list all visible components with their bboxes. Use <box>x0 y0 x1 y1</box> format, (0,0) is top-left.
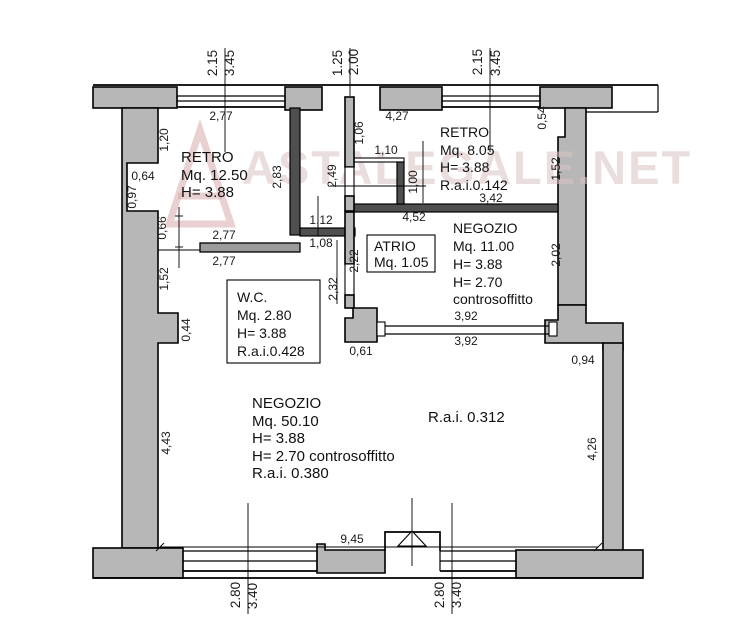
dim-label: 4,26 <box>585 437 599 461</box>
dim-label: 1,52 <box>549 157 563 181</box>
wall-retro-left-right <box>290 108 300 235</box>
dim-label: 1,06 <box>352 121 366 145</box>
room-retro-left-height: H= 3.88 <box>181 184 234 201</box>
dim-label: 3.45 <box>488 50 503 76</box>
wall-top-pillar-right <box>380 87 442 110</box>
room-atrio-name: ATRIO <box>374 238 416 254</box>
room-wc-name: W.C. <box>237 289 267 305</box>
room-negozio-small-area: Mq. 11.00 <box>453 238 514 254</box>
dim-label: 4,52 <box>402 210 426 224</box>
glass-partition-jamb <box>377 322 385 336</box>
room-wc-height: H= 3.88 <box>237 325 287 341</box>
room-retro-left-area: Mq. 12.50 <box>181 167 248 184</box>
dim-label: 4,43 <box>159 431 173 455</box>
room-negozio-small-note: controsoffitto <box>453 291 533 307</box>
wall-bottom-middle <box>317 544 385 573</box>
dim-label: 0,97 <box>125 185 139 209</box>
wall-bottom-right-corner <box>516 550 643 578</box>
dim-label: 3.40 <box>245 583 260 609</box>
dim-label: 2.15 <box>470 49 485 75</box>
dim-label: 2,32 <box>326 277 340 301</box>
room-atrio-area: Mq. 1.05 <box>374 254 429 270</box>
room-retro-left-name: RETRO <box>181 149 234 166</box>
dim-label: 2.80 <box>228 582 243 608</box>
room-retro-right-rai: R.a.i.0.142 <box>440 177 508 193</box>
dim-label: 0,64 <box>131 169 155 183</box>
wall-bottom-left-corner <box>93 548 183 578</box>
room-negozio-small-height: H= 3.88 <box>453 256 503 272</box>
dim-label: 3.40 <box>449 582 464 608</box>
floor-plan-page: ASTALEGALE.NET <box>0 0 743 618</box>
partition-strip <box>345 295 354 308</box>
wall-retro-right-bottom <box>354 204 558 212</box>
pillar-061 <box>345 308 377 342</box>
dim-label: 2,49 <box>325 164 339 188</box>
glass-partition-jamb <box>549 322 557 336</box>
dim-label: 0,44 <box>179 318 193 342</box>
room-retro-right-name: RETRO <box>440 124 489 140</box>
dim-label: 2,77 <box>212 228 236 242</box>
closet-top-wall <box>354 158 404 162</box>
dim-label: 3,92 <box>454 309 478 323</box>
dim-label: 9,45 <box>340 532 364 546</box>
room-negozio-large-height: H= 3.88 <box>252 430 305 447</box>
closet-side-wall <box>397 162 404 204</box>
dim-label: 0,61 <box>349 344 373 358</box>
floor-plan-drawing: ASTALEGALE.NET <box>0 0 743 618</box>
wall-right-upper <box>558 108 586 305</box>
dim-label: 2,77 <box>209 109 233 123</box>
room-negozio-small-height2: H= 2.70 <box>453 274 503 290</box>
dim-label: 2,02 <box>549 243 563 267</box>
dim-label: 4,27 <box>385 109 409 123</box>
rai-note: R.a.i. 0.312 <box>428 409 505 426</box>
room-negozio-large-rai: R.a.i. 0.380 <box>252 465 329 482</box>
dim-label: 2.15 <box>205 50 220 76</box>
wall-right-lower <box>603 343 623 552</box>
dim-label: 0,54 <box>535 106 549 130</box>
room-retro-right-area: Mq. 8.05 <box>440 142 495 158</box>
dim-label: 1,08 <box>309 236 333 250</box>
dim-label: 3,42 <box>479 191 503 205</box>
wall-top-left-corner <box>93 87 177 108</box>
wall-retro-left-bottom <box>200 243 300 252</box>
dim-label: 0,66 <box>155 216 169 240</box>
room-wc-area: Mq. 2.80 <box>237 307 292 323</box>
room-negozio-large-area: Mq. 50.10 <box>252 413 319 430</box>
room-retro-right-height: H= 3.88 <box>440 159 490 175</box>
dim-label: 2,22 <box>347 249 361 273</box>
room-negozio-large-height2: H= 2.70 controsoffitto <box>252 448 395 465</box>
door-leaf <box>345 167 354 196</box>
room-negozio-small-name: NEGOZIO <box>453 220 518 236</box>
partition-strip <box>345 196 354 211</box>
dim-label: 3,92 <box>454 334 478 348</box>
wall-top-right-corner <box>540 87 612 108</box>
dim-label: 0,94 <box>571 353 595 367</box>
dim-label: 1,12 <box>309 213 333 227</box>
dim-label: 1.25 <box>330 50 345 76</box>
top-windows <box>177 96 540 107</box>
dim-label: 1,10 <box>374 143 398 157</box>
wall-top-pillar-left <box>285 87 322 110</box>
dim-label: 2.80 <box>432 582 447 608</box>
room-negozio-large-name: NEGOZIO <box>252 395 321 412</box>
dim-label: 1,52 <box>157 267 171 291</box>
dim-label: 2,77 <box>212 254 236 268</box>
dim-label: 3.45 <box>222 50 237 76</box>
room-wc-rai: R.a.i.0.428 <box>237 343 305 359</box>
dim-label: 1,20 <box>157 128 171 152</box>
dim-label: 2,83 <box>270 165 284 189</box>
dim-label: 1,00 <box>406 170 420 194</box>
dim-label: 2.00 <box>346 49 361 75</box>
